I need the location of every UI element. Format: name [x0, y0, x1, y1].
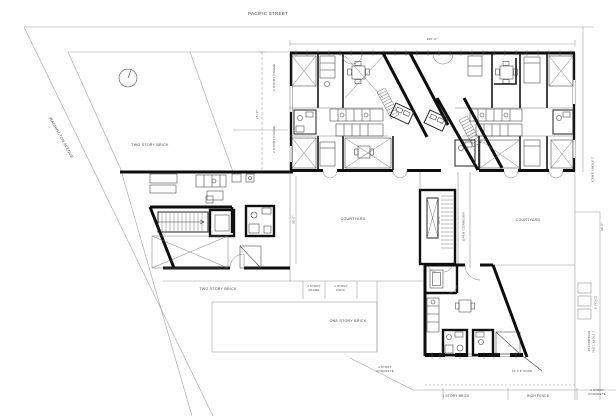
- dim-rear-yard: 32'-0": [600, 222, 604, 231]
- label-concrete-left-2: CONCRETE: [376, 369, 394, 373]
- label-frame-small-2: FRAME: [308, 288, 319, 292]
- label-two-story-brick-right: 2 STORY BRICK: [591, 157, 595, 183]
- label-one-story-brick: ONE STORY BRICK: [330, 319, 367, 323]
- label-frame-upper: 2 STORY FRAME: [272, 64, 276, 91]
- lot-two-story-brick: [119, 69, 293, 172]
- floor-plan-drawing: PACIFIC STREET WASHINGTON AVENUE TWO STO…: [0, 0, 616, 416]
- dim-courtyard-left: 32'-0": [292, 215, 296, 224]
- apartment-fixtures: [292, 56, 573, 168]
- dim-lot-depth: 25'-0": [255, 110, 259, 119]
- label-door-note: 12' X 8' DOOR: [512, 369, 532, 373]
- entry-door-arcs-bottom: [323, 171, 563, 178]
- main-building-wing: [290, 50, 575, 178]
- street-label-washington: WASHINGTON AVENUE: [48, 117, 74, 160]
- lower-left-unit: [150, 174, 290, 268]
- floor-plan-canvas: PACIFIC STREET WASHINGTON AVENUE TWO STO…: [0, 0, 616, 416]
- label-open-corridor: OPEN CORRIDOR: [462, 211, 466, 241]
- street-label-pacific: PACIFIC STREET: [248, 11, 288, 16]
- label-frame-lower: 2 STORY FRAME: [272, 126, 276, 153]
- diagonal-corridor-walls: [383, 53, 502, 170]
- dim-building-width: 160'-0": [426, 37, 437, 41]
- label-conc-small-2: CONC.: [336, 288, 346, 292]
- label-courtyard-left: COURTYARD: [341, 217, 366, 221]
- label-lot-building: TWO STORY BRICK: [131, 143, 169, 147]
- label-fence-note: 6' FENCE: [594, 296, 598, 309]
- label-concrete-right-2: CONCRETE: [588, 392, 606, 396]
- label-mid-building: TWO STORY BRICK: [199, 287, 237, 291]
- dim-courtyard-mid: 32'-0": [437, 215, 441, 224]
- label-high-fence: HIGH FENCE: [527, 394, 549, 398]
- label-courtyard-right: COURTYARD: [516, 218, 541, 222]
- label-basement-2: 1 STORY CONC: [592, 331, 596, 353]
- label-one-story-brick-bottom: 1 STORY BRICK: [442, 394, 470, 398]
- entry-door-arcs-top: [342, 54, 453, 64]
- label-basement-1: BASEMENT AT: [587, 331, 591, 352]
- lower-right-unit: [425, 265, 591, 371]
